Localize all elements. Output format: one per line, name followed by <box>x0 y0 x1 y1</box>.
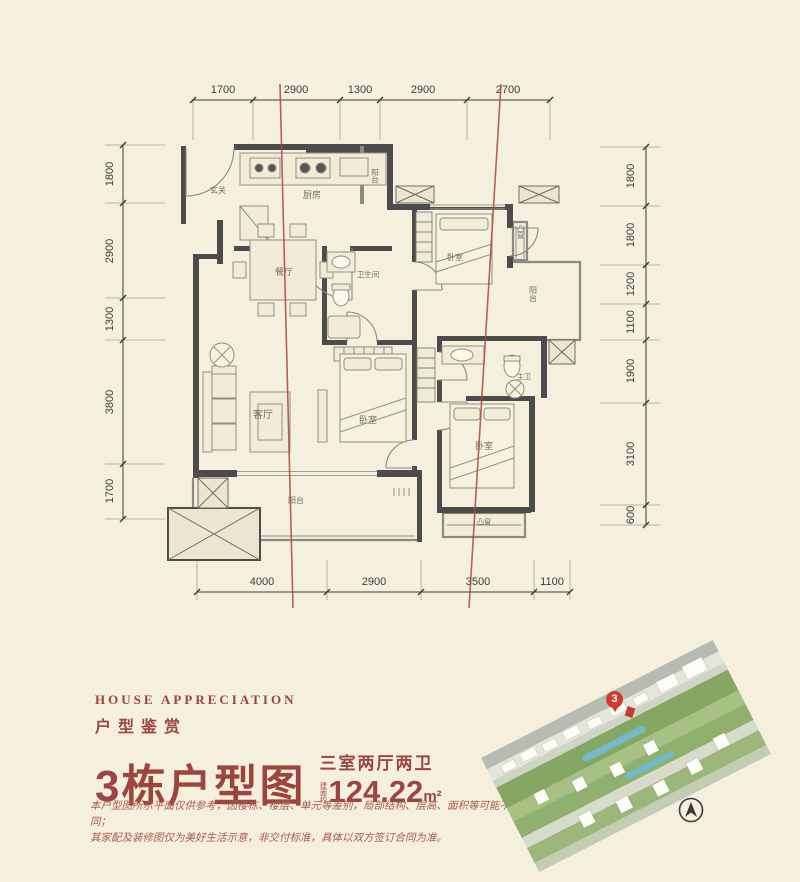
room-label-bath: 卫生间 <box>357 269 380 279</box>
dim-label: 1800 <box>104 162 116 186</box>
dim-label: 3500 <box>466 576 490 588</box>
room-label-bay-bottom: 凸窗 <box>477 517 491 526</box>
dim-label: 1800 <box>625 164 637 188</box>
room-label-bay-right: 凸窗 <box>517 225 525 240</box>
bathroom-fixtures-icon <box>327 252 360 338</box>
location-pin: 3 <box>606 691 623 708</box>
dim-label: 2900 <box>362 576 386 588</box>
dim-label: 2900 <box>284 84 308 96</box>
disclaimer: 本户型图所示平面仅供参考，因楼栋、楼层、单元等差别，局部结构、层高、面积等可能不… <box>90 799 510 847</box>
bed-icon <box>436 214 492 284</box>
room-label-bedroom3: 卧室 <box>359 414 377 425</box>
coffee-table-icon <box>250 392 290 452</box>
dim-label: 1700 <box>211 84 235 96</box>
plant-icon <box>210 343 234 367</box>
room-label-balcony-right: 阳台 <box>529 286 538 303</box>
dim-label: 1100 <box>625 310 637 334</box>
dim-label: 3100 <box>625 442 637 466</box>
dim-label: 1900 <box>625 359 637 383</box>
dim-label: 600 <box>625 506 637 524</box>
dim-label: 1200 <box>625 272 637 296</box>
room-label-entry: 玄关 <box>210 185 226 195</box>
dim-label: 1700 <box>104 479 116 503</box>
dim-label: 1100 <box>540 576 564 588</box>
info-block: HOUSE APPRECIATION 户型鉴赏 3栋户型图 三室两厅两卫 建面约… <box>95 692 442 809</box>
dim-label: 2700 <box>496 84 520 96</box>
tv-cabinet-icon <box>318 390 327 442</box>
eyebrow-english: HOUSE APPRECIATION <box>95 692 442 708</box>
room-label-kitchen-balcony: 阳台 <box>371 168 380 185</box>
dim-label: 1300 <box>348 84 372 96</box>
room-label-master: 卧室 <box>475 440 493 451</box>
dim-label: 2900 <box>104 239 116 263</box>
room-label-bedroom2: 卧室 <box>447 252 463 262</box>
eyebrow-chinese: 户型鉴赏 <box>95 713 442 737</box>
disclaimer-line-2: 其家配及装修图仅为美好生活示意，非交付标准，具体以双方签订合同为准。 <box>90 831 510 847</box>
site-plan-thumbnail <box>512 658 727 858</box>
disclaimer-line-1: 本户型图所示平面仅供参考，因楼栋、楼层、单元等差别，局部结构、层高、面积等可能不… <box>90 799 510 831</box>
site-plan-aerial <box>481 640 771 872</box>
dim-label: 2900 <box>411 84 435 96</box>
bed-icon <box>340 354 406 442</box>
room-label-living: 客厅 <box>253 408 273 421</box>
dim-label: 3800 <box>104 390 116 414</box>
dim-label: 4000 <box>250 576 274 588</box>
page: 1700 2900 1300 2900 2700 4000 2900 3500 … <box>0 0 800 882</box>
dim-label: 1800 <box>625 223 637 247</box>
dim-label: 1300 <box>104 307 116 331</box>
unit-layout-text: 三室两厅两卫 <box>319 749 441 774</box>
compass-icon <box>678 797 704 823</box>
room-label-master-bath: 主卫 <box>517 372 531 381</box>
room-label-kitchen: 厨房 <box>303 189 321 200</box>
balcony-fixture-icon <box>394 488 409 496</box>
floor-plan: 1700 2900 1300 2900 2700 4000 2900 3500 … <box>0 0 800 660</box>
sofa-icon <box>203 366 236 452</box>
